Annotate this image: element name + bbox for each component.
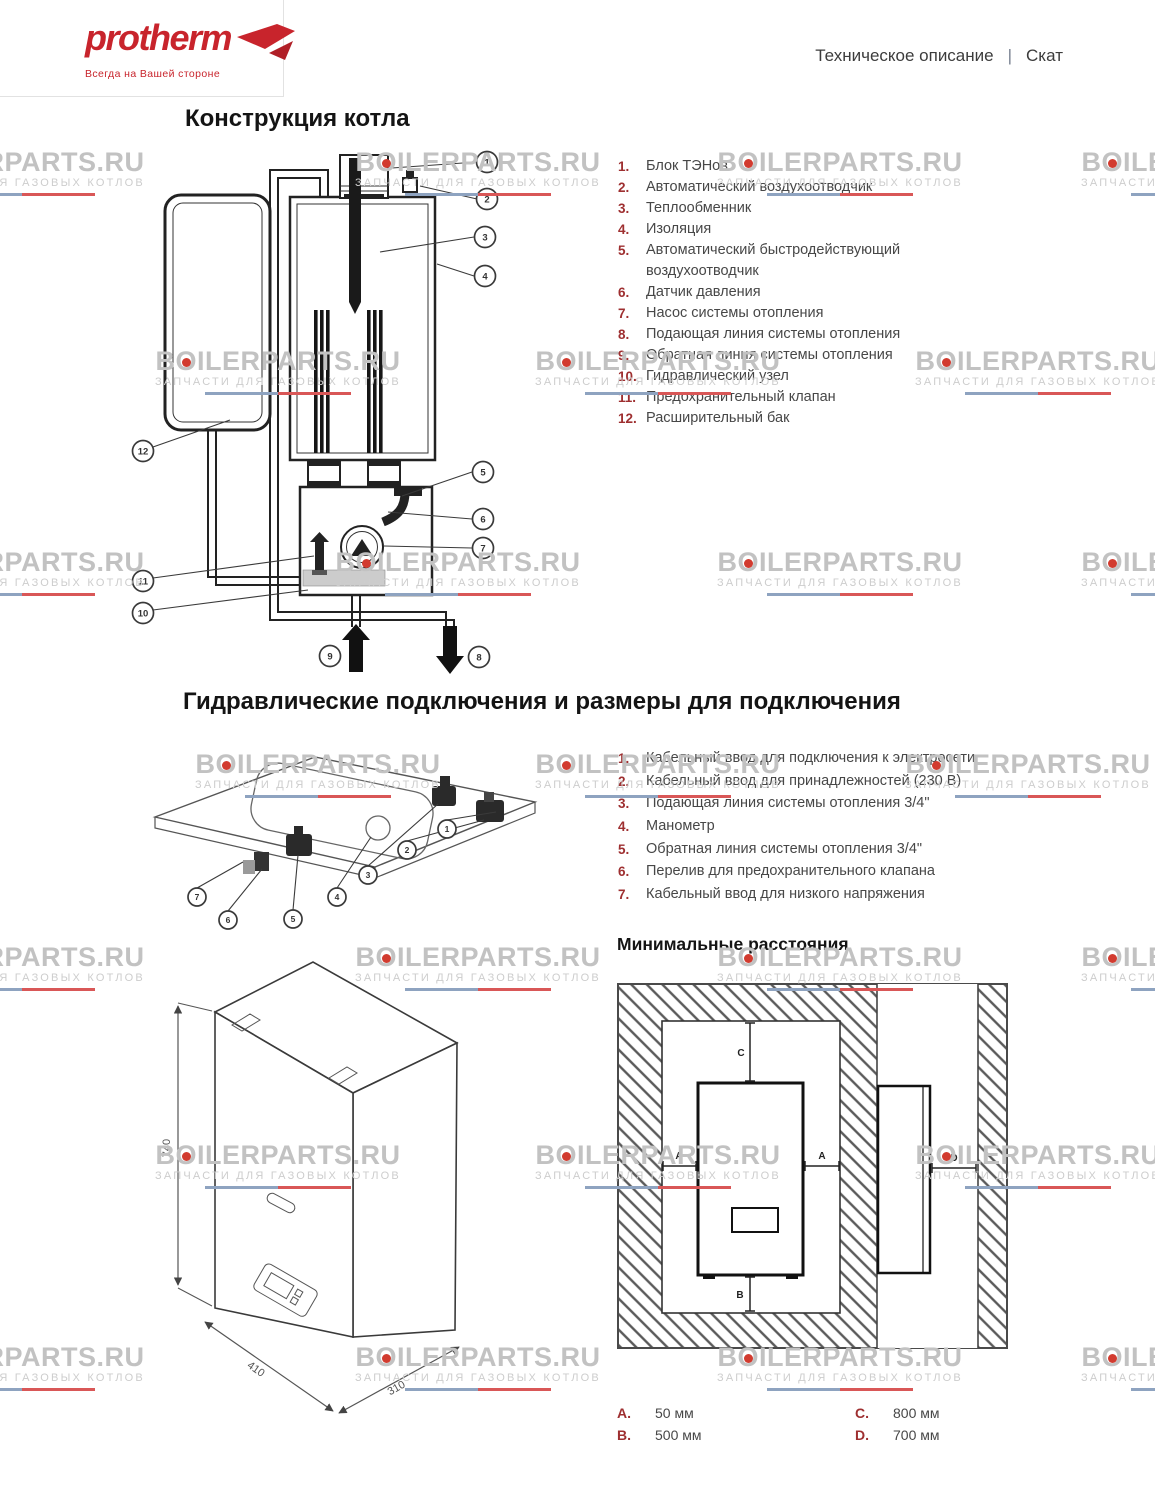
watermark-underline	[767, 1388, 913, 1391]
dim-depth: 310	[386, 1379, 408, 1398]
legend-label: Автоматический воздухоотводчик	[646, 177, 872, 198]
label-a-right: A	[818, 1151, 825, 1162]
watermark: BOILERPARTS.RUЗАПЧАСТИ ДЛЯ ГАЗОВЫХ КОТЛО…	[700, 548, 980, 596]
watermark-subtitle: ЗАПЧАСТИ ДЛЯ ГАЗОВЫХ КОТЛОВ	[700, 1372, 980, 1384]
watermark-underline	[965, 392, 1111, 395]
brand-name: protherm	[85, 20, 231, 56]
legend-item: 2.Автоматический воздухоотводчик	[618, 177, 954, 198]
doc-type-label: Техническое описание	[815, 46, 993, 66]
callout-number: 11	[138, 576, 149, 587]
protherm-logo: protherm Всегда на Вашей стороне	[85, 20, 297, 80]
watermark-underline	[1131, 193, 1155, 196]
legend-number: 11.	[618, 387, 646, 408]
legend-item: 6.Датчик давления	[618, 282, 954, 303]
watermark-underline	[0, 988, 95, 991]
legend-item: 3.Подающая линия системы отопления 3/4"	[618, 793, 1048, 814]
legend-item: 1.Кабельный ввод для подключения к элект…	[618, 748, 1048, 769]
legend-item: 9.Обратная линия системы отопления	[618, 345, 954, 366]
legend-item: 10.Гидравлический узел	[618, 366, 954, 387]
legend-item: 12.Расширительный бак	[618, 408, 954, 429]
label-b: B	[736, 1290, 743, 1301]
pump	[341, 526, 383, 568]
page: protherm Всегда на Вашей стороне Техниче…	[0, 0, 1155, 1500]
section-title-hydraulic: Гидравлические подключения и размеры для…	[183, 688, 901, 716]
legend-number: 8.	[618, 324, 646, 345]
legend-label: Подающая линия системы отопления 3/4"	[646, 793, 930, 814]
callout-number: 2	[405, 845, 410, 855]
watermark-subtitle: ЗАПЧАСТИ ДЛЯ ГАЗОВЫХ КОТЛОВ	[1064, 1372, 1155, 1384]
boiler-isometric	[215, 962, 457, 1337]
callout-number: 5	[480, 467, 486, 478]
watermark: BOILERPARTS.RUЗАПЧАСТИ ДЛЯ ГАЗОВЫХ КОТЛО…	[0, 1343, 162, 1391]
watermark-underline	[0, 1388, 95, 1391]
watermark-underline	[0, 193, 95, 196]
distance-key: A.	[617, 1402, 655, 1424]
callout-number: 6	[226, 915, 231, 925]
legend-number: 3.	[618, 198, 646, 219]
heating-rod	[349, 158, 361, 314]
label-d: D	[950, 1153, 957, 1164]
legend-label: Гидравлический узел	[646, 366, 789, 387]
legend-label: Автоматический быстродействующий воздухо…	[646, 240, 954, 282]
distance-value-row: A.50 мм	[617, 1402, 702, 1424]
label-a-left: A	[675, 1151, 682, 1162]
supply-arrow-down-icon	[436, 626, 464, 674]
legend-label: Насос системы отопления	[646, 303, 823, 324]
legend-item: 7.Кабельный ввод для низкого напряжения	[618, 884, 1048, 905]
boiler-construction-diagram: 123456789101112	[100, 140, 520, 680]
flame-icon: O	[1101, 148, 1123, 176]
legend-label: Обратная линия системы отопления 3/4"	[646, 839, 922, 860]
legend-label: Кабельный ввод для принадлежностей (230 …	[646, 771, 961, 792]
legend-item: 7.Насос системы отопления	[618, 303, 954, 324]
legend-item: 8.Подающая линия системы отопления	[618, 324, 954, 345]
distance-values-right: C.800 ммD.700 мм	[855, 1402, 940, 1446]
legend-label: Изоляция	[646, 219, 711, 240]
watermark: BOILERPARTS.RUЗАПЧАСТИ ДЛЯ ГАЗОВЫХ КОТЛО…	[1064, 943, 1155, 991]
section-title-distances: Минимальные расстояния	[617, 934, 849, 955]
legend-item: 4.Изоляция	[618, 219, 954, 240]
watermark-subtitle: ЗАПЧАСТИ ДЛЯ ГАЗОВЫХ КОТЛОВ	[0, 1372, 162, 1384]
callout-number: 8	[476, 652, 481, 663]
callout-number: 1	[445, 824, 450, 834]
legend-label: Подающая линия системы отопления	[646, 324, 900, 345]
legend-item: 11.Предохранительный клапан	[618, 387, 954, 408]
callout-number: 7	[480, 543, 485, 554]
callout-number: 3	[366, 870, 371, 880]
legend-item: 3.Теплообменник	[618, 198, 954, 219]
legend-label: Теплообменник	[646, 198, 751, 219]
legend-number: 2.	[618, 771, 646, 792]
callout-number: 4	[482, 271, 488, 282]
callout-number: 5	[291, 914, 296, 924]
callout-number: 9	[327, 651, 332, 662]
distance-value-row: B.500 мм	[617, 1424, 702, 1446]
minimal-distances-diagram: C A A B D	[615, 976, 1010, 1351]
legend-label: Кабельный ввод для подключения к электро…	[646, 748, 975, 769]
model-name: Скат	[1026, 46, 1063, 66]
ten-block-head	[340, 155, 388, 198]
legend-number: 1.	[618, 156, 646, 177]
legend-label: Обратная линия системы отопления	[646, 345, 893, 366]
callout-number: 4	[335, 892, 340, 902]
distance-value-row: D.700 мм	[855, 1424, 940, 1446]
watermark: BOILERPARTS.RUЗАПЧАСТИ ДЛЯ ГАЗОВЫХ КОТЛО…	[1064, 148, 1155, 196]
legend-number: 6.	[618, 282, 646, 303]
distance-value: 800 мм	[893, 1402, 940, 1424]
watermark-subtitle: ЗАПЧАСТИ ДЛЯ ГАЗОВЫХ КОТЛОВ	[1064, 577, 1155, 589]
watermark-title: BOILERPARTS.RU	[700, 548, 980, 576]
callout-number: 12	[138, 446, 149, 457]
callout-number: 7	[195, 892, 200, 902]
callout-number: 10	[138, 608, 149, 619]
flame-icon: O	[555, 347, 577, 375]
watermark-title: BOILERPARTS.RU	[1064, 943, 1155, 971]
watermark-underline	[767, 593, 913, 596]
watermark: BOILERPARTS.RUЗАПЧАСТИ ДЛЯ ГАЗОВЫХ КОТЛО…	[0, 943, 162, 991]
boiler-dimensions-drawing: 740 410 310	[150, 950, 480, 1420]
legend-label: Кабельный ввод для низкого напряжения	[646, 884, 925, 905]
distance-value: 50 мм	[655, 1402, 694, 1424]
legend-number: 6.	[618, 861, 646, 882]
page-header: Техническое описание | Скат	[815, 46, 1063, 66]
legend-number: 12.	[618, 408, 646, 429]
distance-value-row: C.800 мм	[855, 1402, 940, 1424]
legend-item: 5.Обратная линия системы отопления 3/4"	[618, 839, 1048, 860]
flame-icon: O	[1101, 548, 1123, 576]
legend-number: 10.	[618, 366, 646, 387]
legend-item: 5.Автоматический быстродействующий возду…	[618, 240, 954, 282]
logo-swoosh-icon	[235, 22, 297, 64]
hydraulic-legend: 1.Кабельный ввод для подключения к элект…	[618, 748, 1048, 907]
legend-item: 1.Блок ТЭНов	[618, 156, 954, 177]
section-title-construction: Конструкция котла	[185, 105, 410, 133]
brand-tagline: Всегда на Вашей стороне	[85, 68, 297, 80]
air-vent	[403, 170, 417, 192]
legend-label: Манометр	[646, 816, 715, 837]
distance-key: B.	[617, 1424, 655, 1446]
legend-label: Расширительный бак	[646, 408, 789, 429]
flame-icon: O	[555, 1141, 577, 1169]
legend-label: Датчик давления	[646, 282, 761, 303]
boiler-front-view	[698, 1083, 803, 1279]
legend-label: Перелив для предохранительного клапана	[646, 861, 935, 882]
watermark-underline	[1131, 1388, 1155, 1391]
watermark: BOILERPARTS.RUЗАПЧАСТИ ДЛЯ ГАЗОВЫХ КОТЛО…	[1064, 1343, 1155, 1391]
dim-height: 740	[161, 1139, 173, 1157]
legend-item: 2.Кабельный ввод для принадлежностей (23…	[618, 771, 1048, 792]
boiler-side-view	[878, 1086, 930, 1273]
legend-number: 1.	[618, 748, 646, 769]
distance-key: D.	[855, 1424, 893, 1446]
expansion-tank	[165, 195, 270, 430]
legend-number: 2.	[618, 177, 646, 198]
legend-number: 4.	[618, 816, 646, 837]
watermark-underline	[1131, 593, 1155, 596]
watermark-subtitle: ЗАПЧАСТИ ДЛЯ ГАЗОВЫХ КОТЛОВ	[0, 972, 162, 984]
header-separator: |	[1008, 46, 1012, 66]
watermark-subtitle: ЗАПЧАСТИ ДЛЯ ГАЗОВЫХ КОТЛОВ	[1064, 972, 1155, 984]
legend-item: 6.Перелив для предохранительного клапана	[618, 861, 1048, 882]
watermark-title: BOILERPARTS.RU	[1064, 548, 1155, 576]
flame-icon: O	[555, 750, 577, 778]
callout-number: 1	[484, 157, 490, 168]
legend-number: 5.	[618, 839, 646, 860]
legend-number: 7.	[618, 884, 646, 905]
distance-values-left: A.50 ммB.500 мм	[617, 1402, 702, 1446]
legend-number: 7.	[618, 303, 646, 324]
watermark-subtitle: ЗАПЧАСТИ ДЛЯ ГАЗОВЫХ КОТЛОВ	[700, 577, 980, 589]
flame-icon: O	[1101, 1343, 1123, 1371]
label-c: C	[737, 1048, 744, 1059]
watermark-subtitle: ЗАПЧАСТИ ДЛЯ ГАЗОВЫХ КОТЛОВ	[1064, 177, 1155, 189]
legend-item: 4.Манометр	[618, 816, 1048, 837]
flange-connectors	[308, 460, 400, 487]
distance-value: 500 мм	[655, 1424, 702, 1446]
distance-key: C.	[855, 1402, 893, 1424]
callout-number: 2	[484, 194, 489, 205]
callout-number: 3	[482, 232, 487, 243]
legend-number: 5.	[618, 240, 646, 282]
legend-label: Блок ТЭНов	[646, 156, 728, 177]
legend-label: Предохранительный клапан	[646, 387, 836, 408]
callout-number: 6	[480, 514, 485, 525]
hydraulic-connections-diagram: 1234567	[140, 742, 540, 947]
watermark-title: BOILERPARTS.RU	[0, 1343, 162, 1371]
watermark-title: BOILERPARTS.RU	[1064, 148, 1155, 176]
distance-value: 700 мм	[893, 1424, 940, 1446]
legend-number: 4.	[618, 219, 646, 240]
watermark-underline	[0, 593, 95, 596]
legend-number: 9.	[618, 345, 646, 366]
watermark-underline	[1131, 988, 1155, 991]
return-arrow-up-icon	[342, 624, 370, 672]
watermark-title: BOILERPARTS.RU	[0, 943, 162, 971]
flame-icon: O	[737, 548, 759, 576]
construction-legend: 1.Блок ТЭНов2.Автоматический воздухоотво…	[618, 156, 954, 429]
flame-icon: O	[1101, 943, 1123, 971]
watermark-title: BOILERPARTS.RU	[1064, 1343, 1155, 1371]
boiler-body	[290, 197, 435, 460]
legend-number: 3.	[618, 793, 646, 814]
watermark: BOILERPARTS.RUЗАПЧАСТИ ДЛЯ ГАЗОВЫХ КОТЛО…	[1064, 548, 1155, 596]
